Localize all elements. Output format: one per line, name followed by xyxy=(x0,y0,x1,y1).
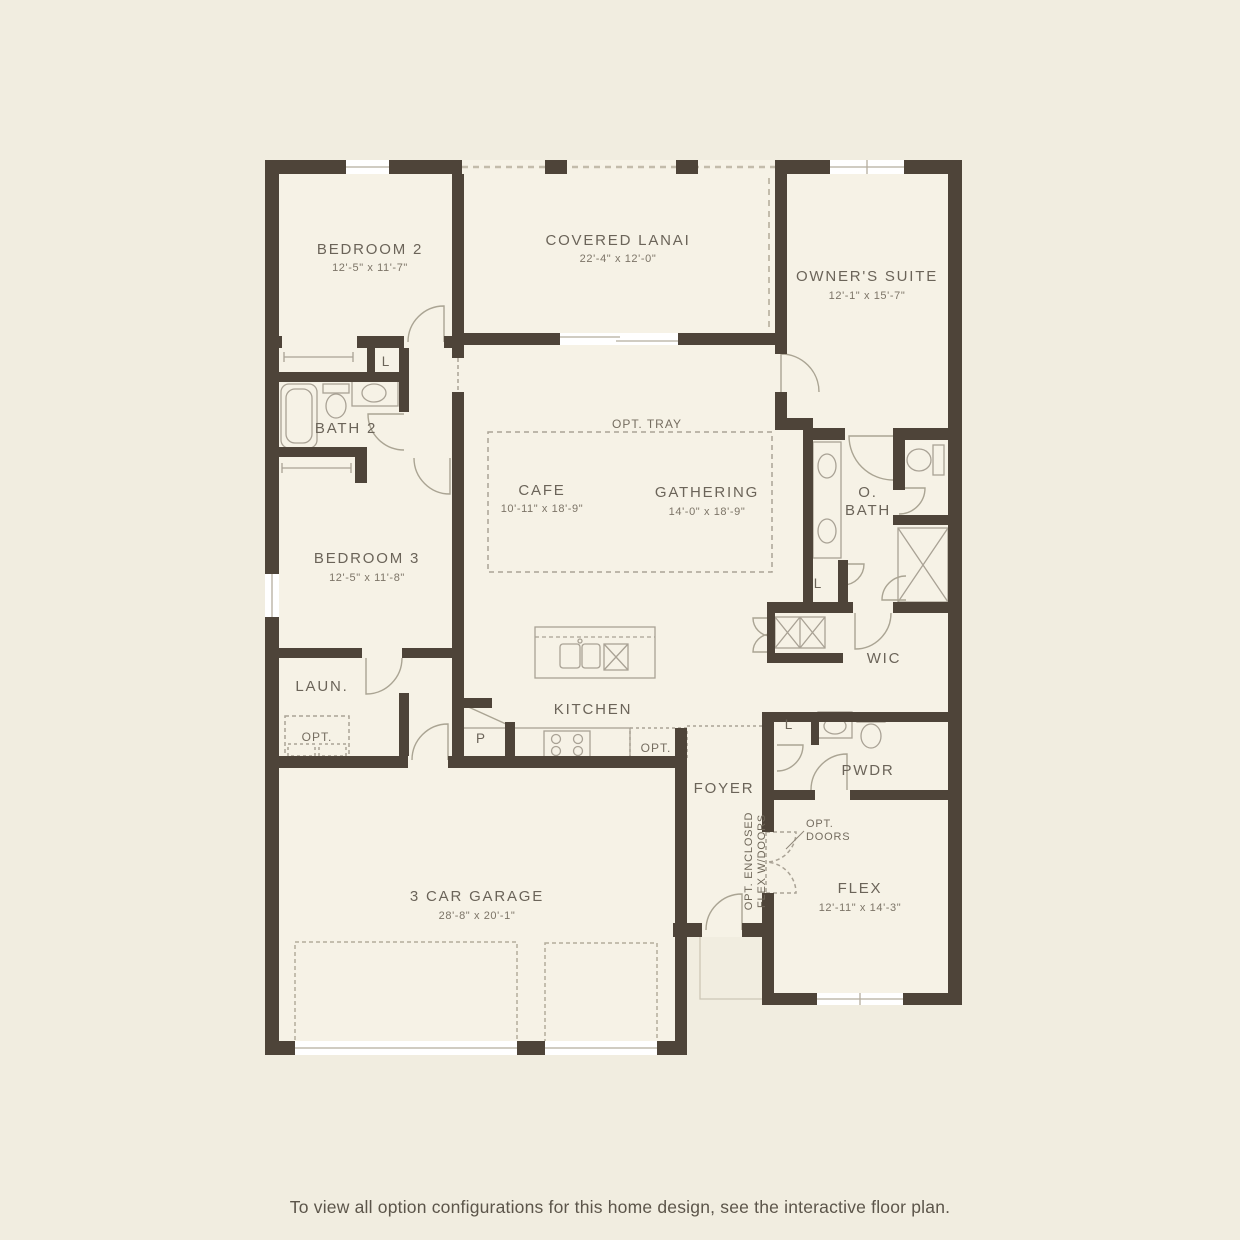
footer-note: To view all option configurations for th… xyxy=(290,1197,950,1217)
room-label-powder: PWDR xyxy=(841,762,894,779)
pantry-label: P xyxy=(476,731,486,746)
opt-laundry-label: OPT. xyxy=(302,730,333,744)
room-label-wic: WIC xyxy=(867,650,902,667)
room-label-foyer: FOYER xyxy=(694,780,755,797)
room-dims-owners-suite: 12'-1" x 15'-7" xyxy=(829,290,906,302)
room-dims-gathering: 14'-0" x 18'-9" xyxy=(669,506,746,518)
opt-tray-label: OPT. TRAY xyxy=(612,417,682,431)
room-dims-covered-lanai: 22'-4" x 12'-0" xyxy=(580,253,657,265)
room-label-owners-bath-1: O. xyxy=(858,484,877,501)
room-label-bedroom3: BEDROOM 3 xyxy=(314,550,420,567)
floor-plan-page: BEDROOM 2 12'-5" x 11'-7" COVERED LANAI … xyxy=(0,0,1240,1240)
opt-enclosed-label-2: FLEX W/DOORS xyxy=(756,814,768,908)
room-label-covered-lanai: COVERED LANAI xyxy=(545,232,690,249)
linen-label-hall: L xyxy=(382,354,391,369)
room-label-kitchen: KITCHEN xyxy=(554,701,632,718)
room-label-owners-bath-2: BATH xyxy=(845,502,891,519)
room-label-garage: 3 CAR GARAGE xyxy=(410,888,544,905)
room-dims-bedroom3: 12'-5" x 11'-8" xyxy=(329,572,405,584)
room-label-owners-suite: OWNER'S SUITE xyxy=(796,268,938,285)
room-label-bedroom2: BEDROOM 2 xyxy=(317,241,423,258)
room-dims-bedroom2: 12'-5" x 11'-7" xyxy=(332,262,408,274)
floor-plan-drawing: BEDROOM 2 12'-5" x 11'-7" COVERED LANAI … xyxy=(0,0,1240,1240)
opt-enclosed-label-1: OPT. ENCLOSED xyxy=(743,812,755,910)
room-label-flex: FLEX xyxy=(838,880,883,897)
opt-doors-label-1: OPT. xyxy=(806,818,834,830)
linen-label-owners-bath: L xyxy=(814,576,823,591)
room-label-laundry: LAUN. xyxy=(295,678,348,695)
room-label-cafe: CAFE xyxy=(518,482,565,499)
room-label-bath2: BATH 2 xyxy=(315,420,377,437)
room-dims-flex: 12'-11" x 14'-3" xyxy=(819,902,902,914)
room-dims-cafe: 10'-11" x 18'-9" xyxy=(501,503,584,515)
linen-label-powder: L xyxy=(785,717,794,732)
slider-lanai xyxy=(560,333,678,345)
room-dims-garage: 28'-8" x 20'-1" xyxy=(439,910,516,922)
room-label-gathering: GATHERING xyxy=(655,484,759,501)
opt-kitchen-label: OPT. xyxy=(641,741,672,755)
opt-doors-label-2: DOORS xyxy=(806,831,850,843)
